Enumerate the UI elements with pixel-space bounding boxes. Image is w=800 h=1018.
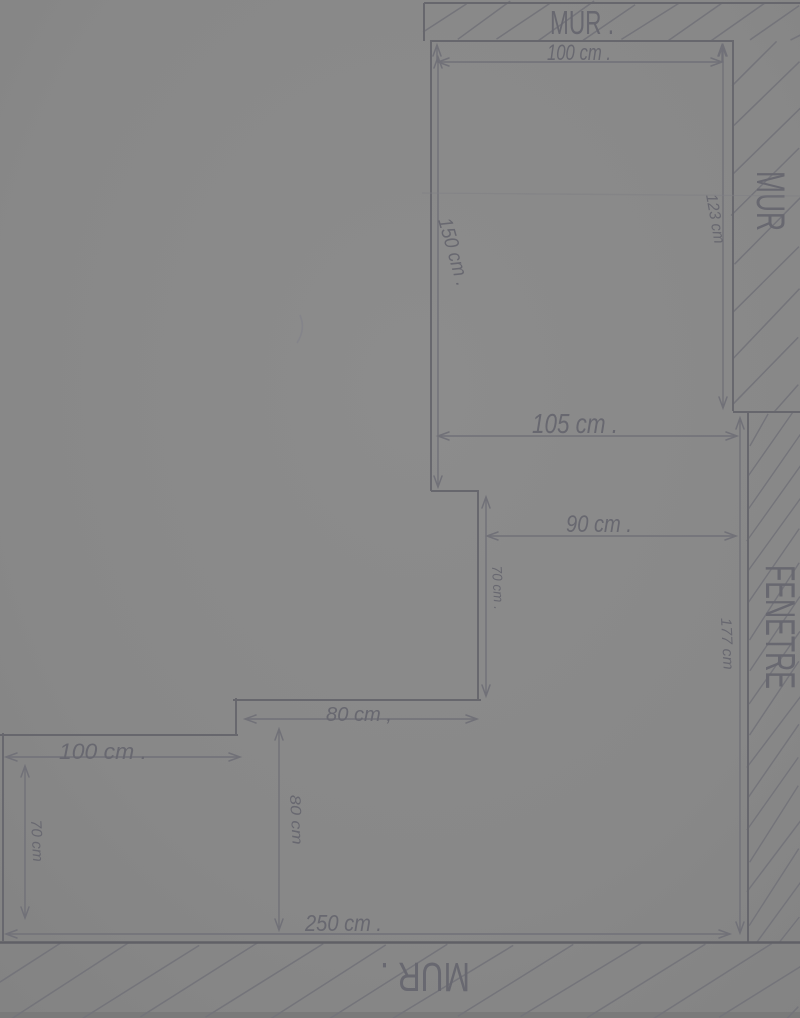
svg-text:105 cm .: 105 cm .	[532, 408, 618, 439]
svg-text:90 cm .: 90 cm .	[566, 511, 632, 538]
svg-text:100 cm .: 100 cm .	[547, 40, 611, 65]
svg-text:FENETRE: FENETRE	[757, 565, 800, 689]
svg-text:80 cm: 80 cm	[286, 794, 306, 845]
svg-text:70 cm: 70 cm	[27, 819, 46, 862]
svg-text:MUR .: MUR .	[380, 954, 470, 1000]
svg-text:MUR .: MUR .	[550, 4, 614, 41]
svg-text:MUR: MUR	[748, 171, 792, 231]
svg-text:250 cm .: 250 cm .	[304, 910, 382, 936]
svg-text:80 cm ,: 80 cm ,	[326, 704, 392, 726]
svg-text:177 cm: 177 cm	[717, 617, 737, 670]
svg-text:100 cm .: 100 cm .	[59, 739, 147, 764]
svg-text:70 cm .: 70 cm .	[489, 565, 507, 610]
